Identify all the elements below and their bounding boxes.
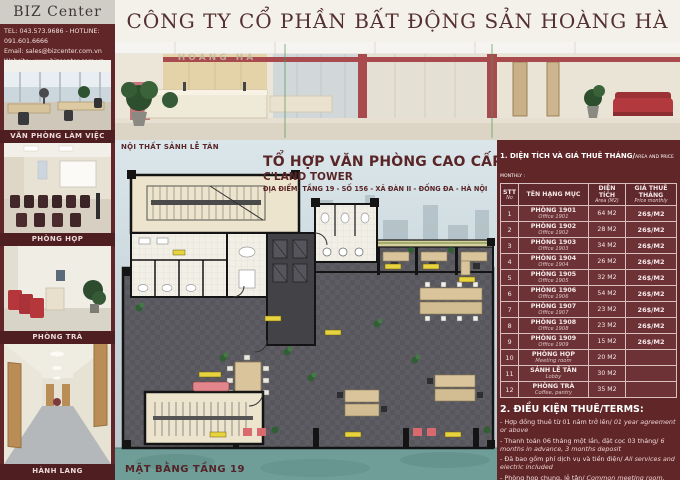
floor-plan-panel: NỘI THẤT SẢNH LỄ TÂN TỔ HỢP VĂN PHÒNG CA… [115,140,497,480]
door [94,344,107,427]
table-row: 12PHÒNG TRÀCoffee, pantry35 M2 [501,382,677,398]
caption-tea: PHÒNG TRÀ [0,331,115,344]
project-address: ĐỊA ĐIỂM: TẦNG 19 - SỐ 156 - XÃ ĐÀN II -… [263,185,497,193]
term-item: - Thanh toán 06 tháng một lần, đặt cọc 0… [500,437,677,453]
brand-logo: BIZ Center [0,0,115,24]
wc-area-right [315,204,377,262]
pricing-panel: 1. DIỆN TÍCH VÀ GIÁ THUÊ THÁNG/AREA AND … [497,140,680,480]
term-item: - Hợp đồng thuê từ 01 năm trở lên/ 01 ye… [500,418,677,434]
project-title-block: TỔ HỢP VĂN PHÒNG CAO CẤP C'LAND TOWER ĐỊ… [263,154,497,193]
plant-icon [78,86,90,98]
tripod-icon [96,193,100,219]
table-row: 3PHÒNG 1903Office 190334 M226$/M2 [501,238,677,254]
price-table: STTNo TÊN HẠNG MỤC DIỆN TÍCHArea (M2) GI… [500,183,677,398]
terms-section: 2. ĐIỀU KIỆN THUÊ/TERMS: - Hợp đồng thuê… [500,404,677,480]
price-table-title: 1. DIỆN TÍCH VÀ GIÁ THUÊ THÁNG/AREA AND … [500,143,677,181]
red-mullion [358,54,367,118]
far-plant [53,398,61,406]
table-row: 4PHÒNG 1904Office 190426 M226$/M2 [501,254,677,270]
tel-line: TEL: 043.573.9686 - HOTLINE: 091.601.666… [4,27,115,47]
chair-icon [64,110,73,121]
table-row: 1PHÒNG 1901Office 190164 M226$/M2 [501,206,677,222]
caption-meeting: PHÒNG HỌP [0,233,115,246]
table-row: 5PHÒNG 1905Office 190532 M226$/M2 [501,270,677,286]
brochure-poster: BIZ Center TEL: 043.573.9686 - HOTLINE: … [0,0,680,480]
door [513,62,527,116]
fan-icon [39,88,49,98]
hallway-photo [4,344,111,464]
project-title: TỔ HỢP VĂN PHÒNG CAO CẤP [263,154,497,170]
door [8,362,21,447]
far-door [46,384,54,406]
stairs-lower [145,392,263,444]
caption-hallway: HÀNH LANG [0,464,115,480]
plan-caption: MẶT BẰNG TẦNG 19 [125,464,245,475]
table-header-row: STTNo TÊN HẠNG MỤC DIỆN TÍCHArea (M2) GI… [501,184,677,206]
table-row: 6PHÒNG 1906Office 190654 M226$/M2 [501,286,677,302]
wc-area [131,233,267,297]
table-row: 10PHÒNG HỌPMeeting room20 M2 [501,350,677,366]
tea-room-photo [4,246,111,331]
table-row: 2PHÒNG 1902Office 190228 M226$/M2 [501,222,677,238]
office-photo [4,60,111,130]
elevator-core [267,233,315,345]
meeting-room-photo [4,143,111,233]
company-title-strip: CÔNG TY CỔ PHẦN BẤT ĐỘNG SẢN HOÀNG HÀ [115,0,680,42]
chair-icon [94,98,102,108]
caption-office: VĂN PHÒNG LÀM VIỆC [0,130,115,143]
company-title: CÔNG TY CỔ PHẦN BẤT ĐỘNG SẢN HOÀNG HÀ [127,9,669,33]
brand-panel: BIZ Center TEL: 043.573.9686 - HOTLINE: … [0,0,115,60]
wall-box [56,270,65,281]
table-row: 7PHÒNG 1907Office 190723 M226$/M2 [501,302,677,318]
project-subtitle: C'LAND TOWER [263,171,497,183]
email-line: Email: sales@bizcenter.com.vn [4,47,115,57]
whiteboard [60,161,96,187]
cabinet [46,288,64,310]
reception-render: HOANG HA [115,42,680,140]
terms-heading: 2. ĐIỀU KIỆN THUÊ/TERMS: [500,404,677,415]
red-sofa [613,92,673,116]
term-item: - Đã bao gồm phí dịch vụ và tiền điện/ A… [500,455,677,471]
table-row: 9PHÒNG 1909Office 190915 M226$/M2 [501,334,677,350]
far-door [62,384,70,406]
table-row: 11SẢNH LỄ TÂNLobby30 M2 [501,366,677,382]
term-item: - Phòng họp chung, lễ tân/ Common meetin… [500,474,677,480]
table-row: 8PHÒNG 1908Office 190823 M226$/M2 [501,318,677,334]
chair-icon [18,112,29,125]
door [547,62,559,116]
wall-sign-text: HOANG HA [167,53,267,63]
reception-caption: NỘI THẤT SẢNH LỄ TÂN [121,143,219,151]
